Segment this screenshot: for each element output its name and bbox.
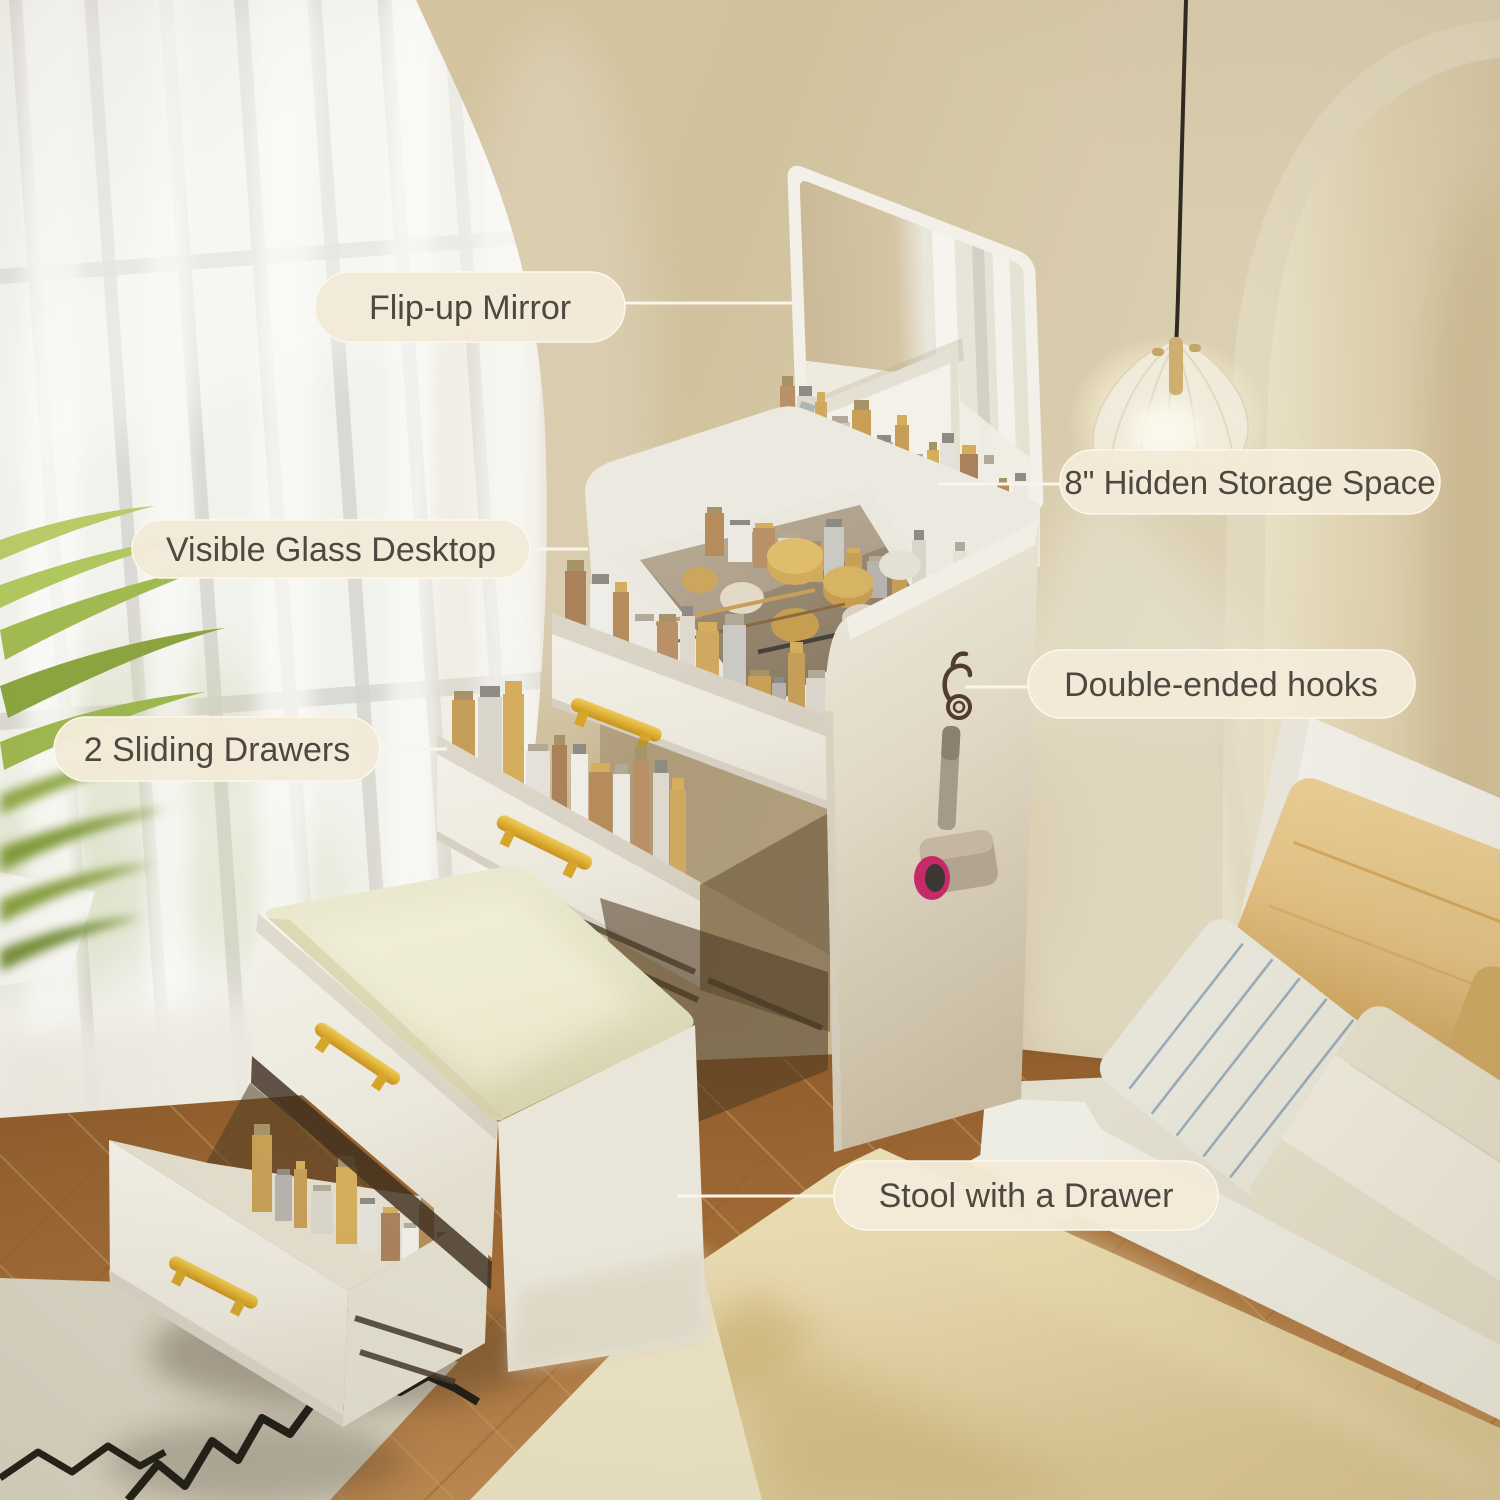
svg-text:Visible Glass Desktop: Visible Glass Desktop xyxy=(166,531,496,569)
svg-text:8" Hidden Storage Space: 8" Hidden Storage Space xyxy=(1064,464,1435,501)
svg-text:2 Sliding Drawers: 2 Sliding Drawers xyxy=(84,731,350,769)
svg-text:Double-ended hooks: Double-ended hooks xyxy=(1064,666,1378,704)
svg-text:Stool with a Drawer: Stool with a Drawer xyxy=(879,1177,1174,1215)
svg-text:Flip-up Mirror: Flip-up Mirror xyxy=(369,289,571,327)
